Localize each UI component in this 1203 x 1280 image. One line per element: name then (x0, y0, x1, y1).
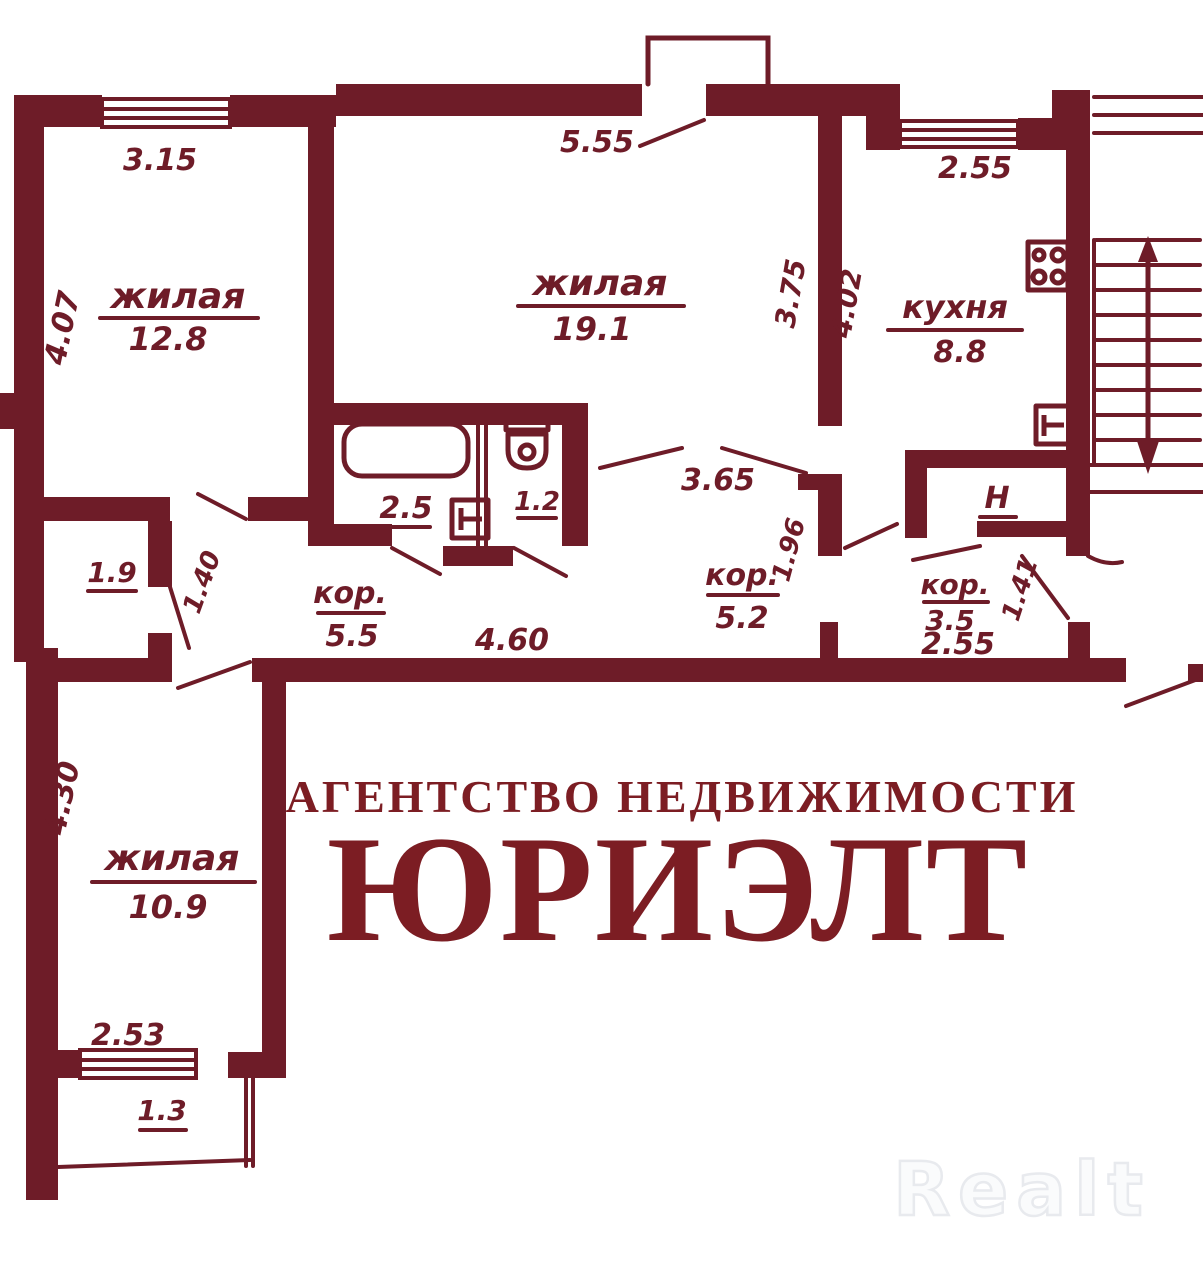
door-room3 (178, 662, 250, 688)
door-room1 (198, 494, 246, 519)
window-kitchen (900, 121, 1018, 147)
room1-area: 12.8 (129, 320, 208, 358)
window-room3-balcony (80, 1050, 196, 1078)
room1-name: жилая (109, 276, 246, 317)
bath-wc-partition (478, 425, 486, 546)
window-room1 (102, 99, 230, 127)
bath-area: 2.5 (379, 491, 432, 526)
dim-room1-left: 4.07 (38, 288, 88, 369)
door-arc-entry (1088, 556, 1122, 563)
toilet-icon (506, 420, 548, 468)
balcony-area: 1.3 (137, 1094, 187, 1127)
door-entrance (1126, 679, 1198, 706)
closet-area: 1.9 (87, 556, 137, 589)
dim-hall-width: 4.60 (474, 623, 549, 658)
agency-watermark: АГЕНТСТВО НЕДВИЖИМОСТИ ЮРИЭЛТ (286, 771, 1079, 973)
cor3-name: кор. (921, 568, 990, 601)
door-kitchen (845, 524, 897, 548)
dim-room2-top: 5.55 (560, 125, 634, 160)
kitchen-name: кухня (902, 288, 1008, 326)
room3-name: жилая (103, 838, 240, 879)
kitchen-sink-icon (1036, 406, 1070, 444)
room2-name: жилая (531, 263, 668, 304)
door-bath (392, 548, 440, 574)
floor-plan: 3.15 4.07 жилая 12.8 5.55 3.75 жилая 19.… (0, 0, 1203, 1280)
dim-closet: 1.40 (177, 547, 227, 618)
staircase (1090, 97, 1203, 492)
room3-area: 10.9 (129, 888, 208, 926)
niche-label: Н (984, 481, 1009, 516)
walls (0, 84, 1203, 1200)
cor1-name: кор. (313, 576, 387, 611)
labels: 3.15 4.07 жилая 12.8 5.55 3.75 жилая 19.… (38, 125, 1045, 1130)
agency-watermark-line2: ЮРИЭЛТ (327, 805, 1029, 973)
realt-logo: Realt (893, 1147, 1151, 1233)
stove-icon (1028, 242, 1068, 290)
door-cor3-left (913, 546, 980, 560)
door-room2-left-leaf (600, 448, 682, 468)
dim-kitchen-top: 2.55 (938, 151, 1012, 186)
dim-cor2-width: 3.65 (681, 463, 755, 498)
room2-area: 19.1 (553, 310, 632, 348)
loggia-outline (648, 38, 768, 84)
cor1-area: 5.5 (325, 619, 378, 654)
dim-cor3-depth: 1.41 (996, 554, 1044, 624)
wc-area: 1.2 (514, 487, 560, 517)
dim-room1-top: 3.15 (123, 143, 197, 178)
cor2-name: кор. (705, 558, 779, 593)
stairs-direction-arrow (1136, 236, 1160, 474)
kitchen-area: 8.8 (933, 335, 986, 370)
dim-room2-right: 3.75 (768, 256, 812, 330)
cor2-area: 5.2 (715, 601, 768, 636)
door-wc (514, 548, 566, 576)
dim-room3-bottom: 2.53 (91, 1018, 165, 1053)
door-room2-top (640, 120, 704, 146)
bath-sink-icon (452, 500, 488, 538)
bathtub-icon (344, 424, 468, 476)
dim-cor3-width: 2.55 (921, 627, 995, 662)
floor-plan-page: 3.15 4.07 жилая 12.8 5.55 3.75 жилая 19.… (0, 0, 1203, 1280)
